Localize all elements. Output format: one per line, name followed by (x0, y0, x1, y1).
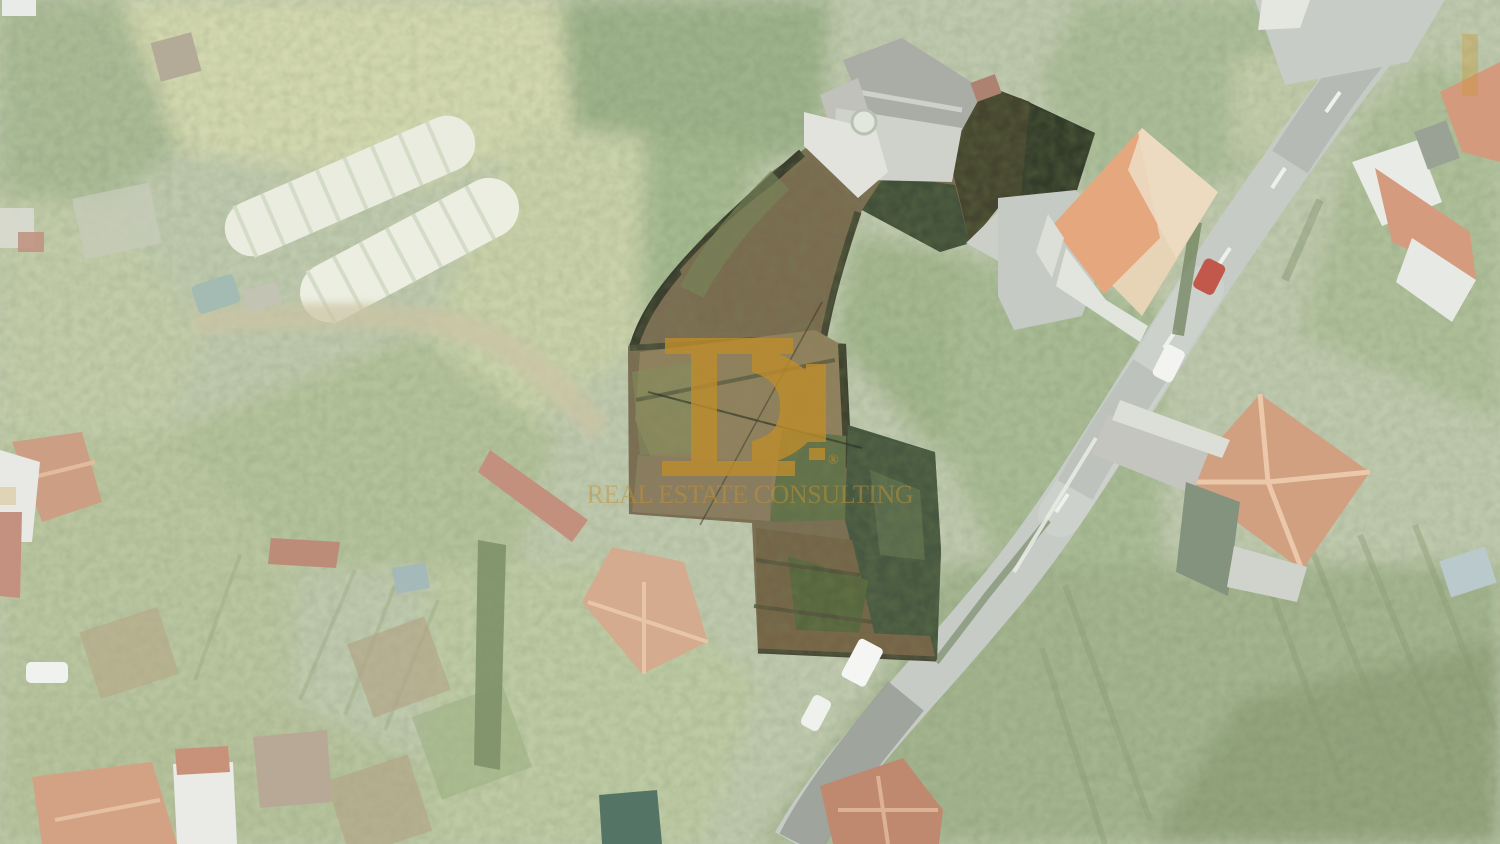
svg-text:REAL ESTATE CONSULTING: REAL ESTATE CONSULTING (587, 480, 914, 509)
svg-text:®: ® (828, 453, 839, 468)
